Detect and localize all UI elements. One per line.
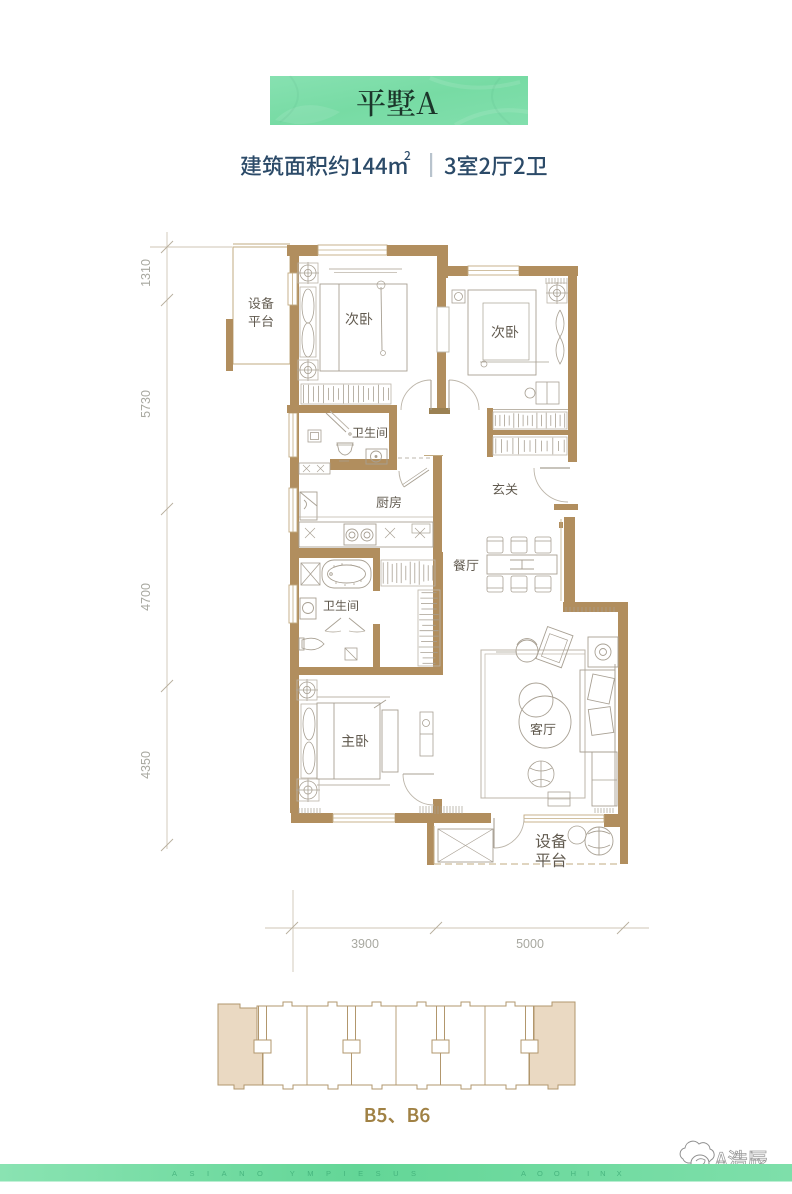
svg-text:AOOHINX: AOOHINX (521, 1169, 633, 1178)
svg-text:5730: 5730 (139, 390, 153, 418)
svg-text:ASIANO YMPIESUS: ASIANO YMPIESUS (172, 1169, 429, 1178)
svg-text:4700: 4700 (139, 583, 153, 611)
svg-text:4350: 4350 (139, 751, 153, 779)
svg-text:1310: 1310 (139, 259, 153, 287)
svg-text:5000: 5000 (516, 937, 544, 951)
svg-text:3900: 3900 (351, 937, 379, 951)
